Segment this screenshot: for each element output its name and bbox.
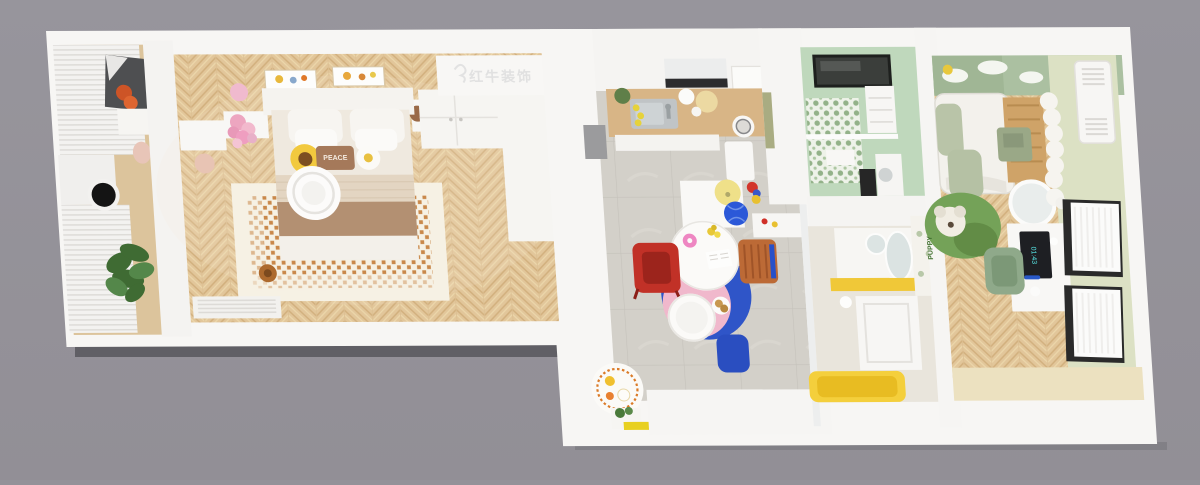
svg-text:红牛装饰: 红牛装饰 bbox=[469, 68, 534, 84]
svg-text:PEACE: PEACE bbox=[323, 155, 348, 162]
svg-text:01:43: 01:43 bbox=[1029, 247, 1037, 265]
